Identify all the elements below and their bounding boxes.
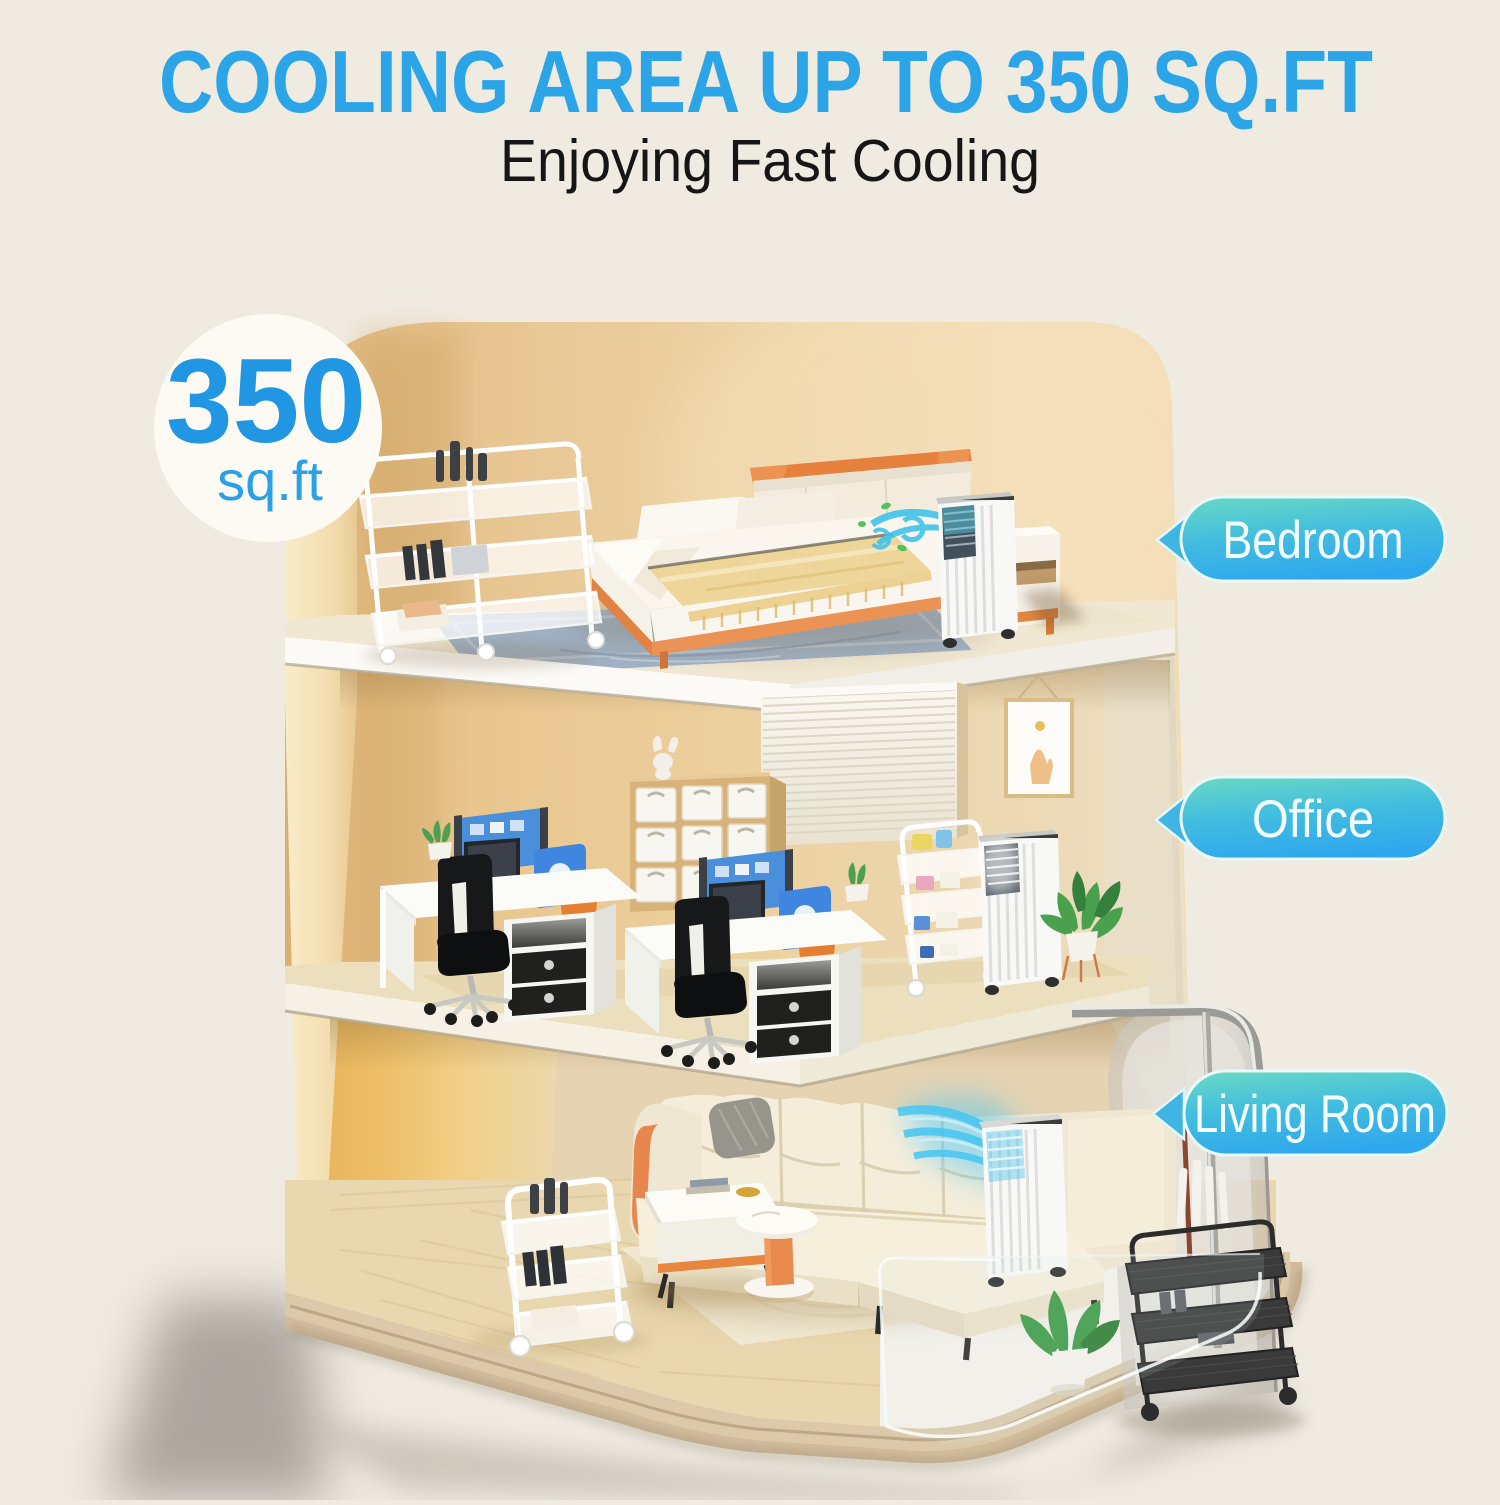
svg-text:Enjoying Fast Cooling: Enjoying Fast Cooling xyxy=(500,128,1040,194)
svg-text:Living Room: Living Room xyxy=(1194,1085,1436,1144)
svg-text:COOLING AREA UP TO 350 SQ.FT: COOLING AREA UP TO 350 SQ.FT xyxy=(159,32,1373,131)
svg-text:Office: Office xyxy=(1252,790,1374,849)
svg-text:sq.ft: sq.ft xyxy=(217,449,323,512)
svg-text:Bedroom: Bedroom xyxy=(1223,511,1404,570)
svg-text:350: 350 xyxy=(166,334,366,468)
